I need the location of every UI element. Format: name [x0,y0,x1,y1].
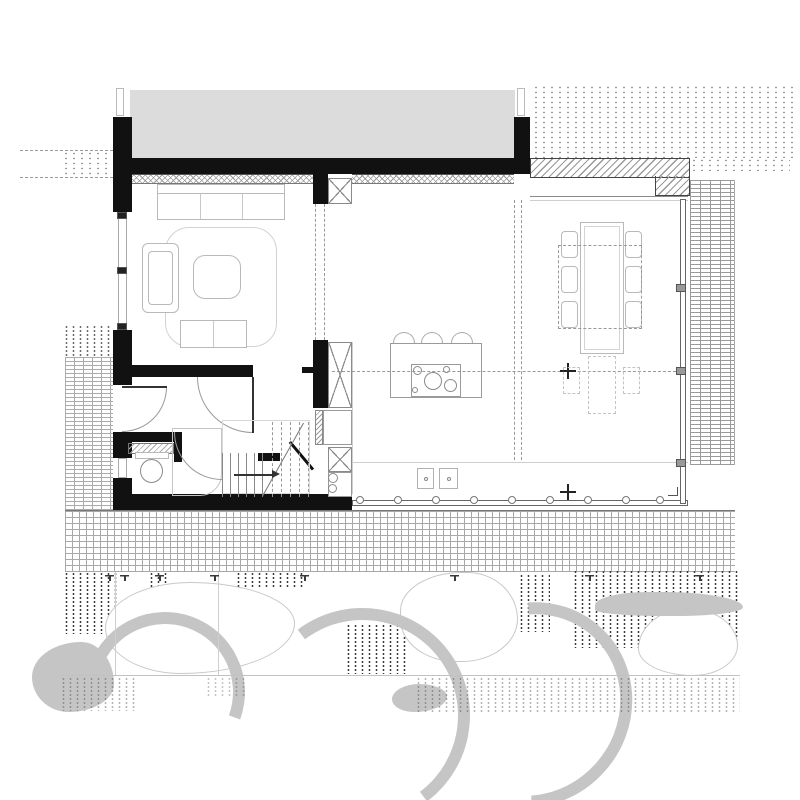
garden-line-v1 [115,572,116,675]
garden-stipple-low-3 [415,677,740,712]
glazing-mullion-icon [622,496,630,504]
sofa-seat-divider-2 [242,193,243,219]
stair-tread [222,453,223,497]
kitchen-wall [313,340,328,408]
glazing-mullion-icon [508,496,516,504]
terrace-paving [65,510,735,572]
neighbor-wall-dashed-b [20,177,113,178]
hob-burner-icon [444,379,457,392]
north-wall-insulation-left [130,174,313,184]
hob-burner-icon [424,372,442,390]
table-extension-dashed [588,356,616,414]
glazing-mullion-icon [394,496,402,504]
tall-cabinet-top [328,178,352,204]
south-wall [113,494,352,510]
sofa-backrest-line [158,193,284,194]
canopy-edge-line [352,462,688,463]
plant-mark-icon [210,575,219,581]
tall-cabinet-low [328,447,352,472]
stair-tread-dashed [272,422,273,497]
bar-stool [451,332,473,343]
sofa-three-seat [157,184,285,220]
plant-mark-icon [120,575,129,581]
stipple-patch-west [63,325,111,357]
axis-dashed-vertical-a [514,200,515,460]
stipple-area-topright [532,85,795,158]
stipple-patch-topleft [62,151,113,176]
cabinet-sink-icon [328,484,337,493]
toilet-cistern [135,452,169,459]
garden-wall-corner [655,176,690,196]
glazing-mullion-icon [546,496,554,504]
glazing-mullion-icon [676,284,686,292]
dining-threshold-line-b [530,200,688,201]
stair-tread-dashed [290,422,291,497]
boundary-post-right [517,88,525,116]
dining-chair-dashed [623,367,640,394]
stair-tread [230,453,231,497]
sofa-seat-divider-1 [200,193,201,219]
beam-over-dashed-a [315,204,316,340]
side-path-east [690,180,735,465]
cabinet-appliance [323,410,352,445]
hall-wall [130,365,253,377]
garden-line-v2 [218,572,219,675]
garden-stipple-low-2 [205,677,247,697]
stair-outline [222,420,310,494]
tall-cabinet-mid [328,342,352,408]
floor-fixture-dot [447,477,451,481]
garden-wall-band [530,158,690,178]
plant-mark-icon [300,575,309,581]
dining-chair-dashed [563,367,580,394]
dining-threshold-line-a [530,196,688,197]
armchair-seat [148,251,173,305]
floor-plan-canvas [0,0,800,800]
neighbor-building [130,90,515,158]
west-window-bath [118,458,127,478]
tree-canopy-white-3 [638,608,738,676]
side-passage-paving [65,357,113,510]
interior-pier [313,174,328,204]
kitchen-wall-stub [302,367,313,373]
coffee-table [193,255,241,299]
void-over-dashed [558,245,642,329]
stair-arrow-head [272,470,280,478]
glazing-mullion-icon [584,496,592,504]
plant-mark-icon [695,575,704,581]
bar-stool [393,332,415,343]
stair-arrow-shaft [234,474,272,476]
hob-burner-icon [412,387,418,393]
beam-over-dashed-b [324,204,325,340]
plant-mark-icon [105,575,114,581]
plant-mark-icon [155,575,164,581]
bar-stool [421,332,443,343]
glazing-mullion-icon [432,496,440,504]
toilet-bowl [140,459,163,483]
boundary-post-left [116,88,124,116]
garden-stipple-3 [235,572,307,588]
cabinet-face-line [352,342,353,494]
glazing-mullion-icon [676,459,686,467]
front-door-leaf [122,386,167,388]
stipple-area-topright-ext [690,158,790,171]
corner-mark-v [677,487,678,496]
floor-fixture-dot [424,477,428,481]
stair-tread-dashed [308,422,309,497]
plant-mark-icon [585,575,594,581]
stair-tread-dashed [299,422,300,497]
north-wall-insulation-right [352,174,514,184]
duct-hatch [315,410,323,445]
cabinet-sink-icon [328,473,338,483]
glazing-mullion-icon [676,367,686,375]
west-wall-seg1 [113,174,132,212]
window-mullion-icon [117,267,127,274]
plant-mark-icon [450,575,459,581]
axis-dashed-vertical-b [521,200,522,460]
glazing-mullion-icon [656,496,664,504]
south-glazing [352,500,688,506]
window-mullion-icon [117,323,127,330]
north-wall [113,158,530,174]
window-mullion-icon [117,212,127,219]
garden-stipple-low-1 [60,677,136,711]
glazing-mullion-icon [470,496,478,504]
property-line [60,675,740,676]
glazing-mullion-icon [356,496,364,504]
sofa2-divider [213,321,214,347]
